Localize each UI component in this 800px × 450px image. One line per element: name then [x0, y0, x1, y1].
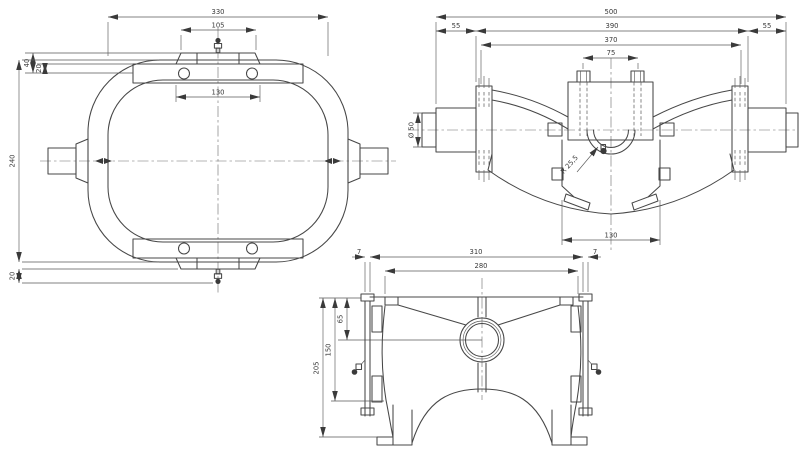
- dim-bolt-spacing-label: 75: [607, 49, 616, 57]
- bolt-hole: [179, 68, 190, 79]
- dim-bar-offset-label: 20: [35, 64, 43, 73]
- dim-right-flange-label: 55: [763, 22, 772, 30]
- dim-shaft-diameter-label: Ø 50: [408, 122, 416, 138]
- body-side-edges: [382, 306, 581, 400]
- top-slope-lines: [398, 305, 560, 325]
- top-corner-tab: [385, 297, 398, 305]
- dim-plate-left-label: 7: [357, 248, 361, 256]
- bearing-bolt: [577, 71, 590, 136]
- lower-housing: [562, 140, 660, 197]
- dim-body-width-label: 370: [605, 36, 618, 44]
- left-flange-bolt-holes: [479, 92, 489, 166]
- bearing-bolt: [631, 71, 644, 136]
- dim-overall-height-label: 205: [313, 362, 321, 375]
- dim-overall-height-label: 240: [9, 155, 17, 168]
- flange-slot: [372, 376, 382, 402]
- front-dimensions: 500 55 390 55 370 75 Ø 50 130 R 25,5: [408, 8, 787, 245]
- drawing-canvas: 330 105 40 20 240 20 130: [0, 0, 800, 450]
- side-view: 7 310 7 280 65 150 205: [313, 248, 602, 445]
- right-flange-bolt-holes: [735, 92, 745, 166]
- grease-nipple-icon: [588, 360, 601, 375]
- top-corner-tab: [560, 297, 573, 305]
- bearing-block: [568, 82, 653, 140]
- dim-body-height-label: 150: [325, 344, 333, 357]
- dim-overall-width-label: 500: [605, 8, 618, 16]
- bolt-hole: [247, 243, 258, 254]
- flange-slot: [372, 306, 382, 332]
- dim-left-flange-label: 55: [452, 22, 461, 30]
- grease-nipple-icon: [352, 360, 365, 375]
- right-leg: [552, 405, 587, 445]
- plan-view: 330 105 40 20 240 20 130: [9, 8, 397, 294]
- right-flange-bolt-ticks: [735, 76, 745, 182]
- dim-bore-offset-label: 65: [337, 315, 345, 324]
- dim-housing-width-label: 130: [605, 232, 618, 240]
- left-flange-bolt-ticks: [479, 76, 489, 182]
- side-lug: [659, 168, 670, 180]
- side-lug: [548, 123, 562, 136]
- dim-bolt-spacing-label: 130: [212, 89, 225, 97]
- bolt-hole: [247, 68, 258, 79]
- left-leg: [377, 405, 412, 445]
- drawing-sheet: 330 105 40 20 240 20 130: [0, 0, 800, 450]
- front-view: 500 55 390 55 370 75 Ø 50 130 R 25,5: [408, 8, 799, 252]
- dim-inner-width-label: 390: [606, 22, 619, 30]
- side-lug: [660, 123, 674, 136]
- dim-plate-width-label: 105: [212, 22, 225, 30]
- dim-overall-width-label: 310: [470, 248, 483, 256]
- dim-nipple-offset-label: 20: [9, 272, 17, 281]
- dim-plate-right-label: 7: [593, 248, 597, 256]
- dim-overall-width-label: 330: [212, 8, 225, 16]
- dim-inner-width-label: 280: [475, 262, 488, 270]
- bolt-hole: [179, 243, 190, 254]
- side-dimensions: 7 310 7 280 65 150 205: [313, 248, 602, 437]
